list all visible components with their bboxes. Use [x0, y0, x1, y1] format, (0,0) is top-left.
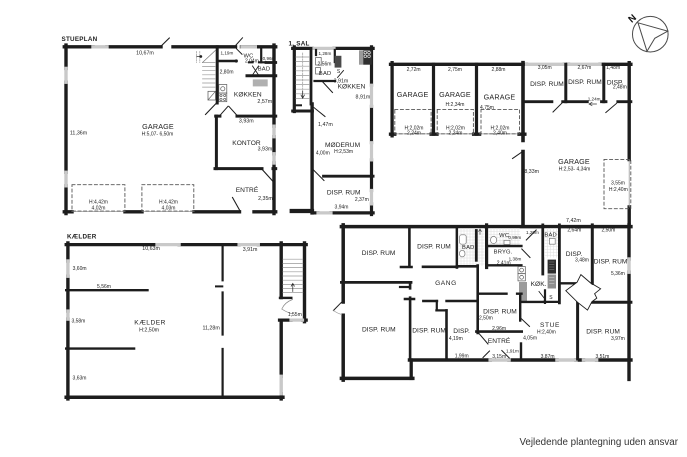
svg-text:8,91m: 8,91m	[356, 94, 371, 100]
svg-text:3,91m: 3,91m	[243, 247, 258, 253]
svg-text:H:2,40m: H:2,40m	[537, 329, 556, 335]
svg-text:KØKKEN: KØKKEN	[338, 84, 366, 91]
svg-text:1,48m: 1,48m	[606, 65, 620, 71]
svg-text:11,36m: 11,36m	[70, 130, 88, 136]
svg-text:DISP. RUM: DISP. RUM	[362, 250, 396, 257]
svg-text:3,05m: 3,05m	[538, 65, 552, 71]
svg-text:3,48m: 3,48m	[575, 258, 589, 264]
svg-text:3,60m: 3,60m	[73, 266, 87, 272]
svg-text:3,15m: 3,15m	[492, 354, 506, 360]
svg-text:KÆLDER: KÆLDER	[134, 320, 166, 327]
svg-text:1,91m: 1,91m	[506, 348, 519, 353]
svg-text:GANG: GANG	[435, 280, 457, 287]
svg-text:GARAGE: GARAGE	[558, 157, 590, 166]
svg-text:2,35m: 2,35m	[258, 196, 273, 202]
svg-text:3,63m: 3,63m	[73, 376, 87, 382]
svg-text:1,99m: 1,99m	[455, 354, 469, 360]
svg-text:2,41m: 2,41m	[497, 261, 511, 267]
svg-text:2,88m: 2,88m	[492, 67, 506, 73]
svg-text:3,87m: 3,87m	[541, 354, 555, 360]
svg-text:BAD: BAD	[258, 67, 271, 73]
svg-text:STUEPLAN: STUEPLAN	[62, 36, 98, 43]
svg-text:1,24m: 1,24m	[588, 97, 601, 102]
svg-text:2,37m: 2,37m	[355, 197, 369, 203]
svg-text:4,02m: 4,02m	[92, 205, 106, 211]
svg-text:H:2,34m: H:2,34m	[446, 102, 465, 108]
svg-text:3,93m: 3,93m	[258, 147, 273, 153]
svg-text:KONTOR: KONTOR	[232, 140, 261, 147]
svg-text:BRYG.: BRYG.	[494, 250, 513, 256]
svg-text:DISP. RUM: DISP. RUM	[530, 81, 564, 88]
svg-text:3,94m: 3,94m	[335, 204, 349, 210]
svg-text:2,64m: 2,64m	[567, 228, 581, 234]
svg-text:10,67m: 10,67m	[136, 50, 154, 56]
svg-text:DISP. RUM: DISP. RUM	[586, 329, 620, 336]
svg-text:2,04m: 2,04m	[245, 59, 259, 65]
svg-text:3,51m: 3,51m	[595, 354, 609, 360]
svg-text:8,33m: 8,33m	[524, 169, 539, 175]
svg-text:MØDERUM: MØDERUM	[325, 142, 360, 149]
svg-text:DISP. RUM: DISP. RUM	[568, 79, 602, 86]
svg-text:KØKKEN: KØKKEN	[234, 92, 262, 99]
svg-text:2,24m: 2,24m	[449, 130, 463, 136]
svg-text:11,28m: 11,28m	[202, 325, 220, 331]
svg-text:KØK.: KØK.	[531, 281, 547, 288]
svg-text:4,05m: 4,05m	[523, 336, 537, 342]
svg-text:2,57m: 2,57m	[257, 99, 272, 105]
svg-text:BAD: BAD	[544, 232, 557, 238]
svg-text:KÆLDER: KÆLDER	[67, 234, 97, 241]
svg-text:5,36m: 5,36m	[611, 271, 625, 277]
svg-text:H:2,50m: H:2,50m	[139, 327, 160, 333]
svg-text:3,97m: 3,97m	[611, 336, 625, 342]
svg-text:1. SAL: 1. SAL	[289, 40, 310, 47]
svg-text:0,99m: 0,99m	[508, 235, 521, 240]
svg-text:2,75m: 2,75m	[448, 67, 462, 73]
svg-text:H:2,40m: H:2,40m	[609, 187, 628, 193]
svg-text:1,55m: 1,55m	[288, 312, 302, 318]
svg-text:GARAGE: GARAGE	[484, 92, 516, 101]
svg-text:GARAGE: GARAGE	[397, 90, 429, 99]
svg-text:DISP. RUM: DISP. RUM	[417, 244, 451, 251]
svg-text:H:5,07- 6,50m: H:5,07- 6,50m	[142, 132, 174, 138]
svg-text:2,50m: 2,50m	[479, 316, 493, 322]
svg-text:ENTRÉ: ENTRÉ	[488, 336, 511, 345]
svg-text:DISP.: DISP.	[453, 328, 470, 335]
svg-text:4,19m: 4,19m	[449, 336, 463, 342]
svg-text:GARAGE: GARAGE	[439, 90, 471, 99]
svg-text:4,00m: 4,00m	[316, 150, 330, 156]
svg-text:1,28m: 1,28m	[319, 51, 332, 56]
svg-text:4,03m: 4,03m	[162, 205, 176, 211]
svg-text:10,63m: 10,63m	[142, 246, 160, 252]
svg-text:2,24m: 2,24m	[407, 130, 421, 136]
svg-text:2,50m: 2,50m	[601, 228, 615, 234]
svg-text:DISP. RUM: DISP. RUM	[362, 327, 396, 334]
svg-text:Vejledende plantegning uden an: Vejledende plantegning uden ansvar	[519, 437, 678, 448]
svg-text:4,75m: 4,75m	[480, 105, 494, 111]
svg-text:H:2,53- 4,34m: H:2,53- 4,34m	[559, 167, 591, 173]
svg-text:2,48m: 2,48m	[613, 85, 627, 91]
svg-text:1,47m: 1,47m	[318, 122, 333, 128]
svg-text:ENTRÉ: ENTRÉ	[236, 185, 259, 194]
svg-text:H:2,53m: H:2,53m	[334, 149, 353, 155]
svg-text:DISP. RUM: DISP. RUM	[327, 190, 361, 197]
svg-text:2,40m: 2,40m	[493, 130, 507, 136]
svg-text:2,67m: 2,67m	[577, 65, 591, 71]
svg-text:3,93m: 3,93m	[239, 118, 254, 124]
svg-text:STUE: STUE	[540, 322, 560, 329]
svg-text:1,19m: 1,19m	[221, 50, 234, 55]
svg-text:3,58m: 3,58m	[71, 319, 85, 325]
svg-text:2,56m: 2,56m	[318, 61, 332, 67]
svg-text:BAD: BAD	[462, 245, 475, 251]
svg-text:DISP. RUM: DISP. RUM	[594, 259, 628, 266]
svg-text:BAD: BAD	[319, 71, 332, 77]
svg-text:7,42m: 7,42m	[566, 218, 581, 224]
svg-text:GARAGE: GARAGE	[142, 122, 174, 131]
svg-text:2,72m: 2,72m	[407, 67, 421, 73]
svg-text:5,56m: 5,56m	[97, 284, 111, 290]
svg-text:DISP. RUM: DISP. RUM	[412, 328, 446, 335]
svg-text:2,96m: 2,96m	[492, 326, 506, 332]
svg-text:0,96m: 0,96m	[263, 56, 276, 61]
svg-text:3,55m: 3,55m	[611, 180, 625, 186]
svg-text:2,80m: 2,80m	[220, 69, 234, 75]
svg-text:1,20m: 1,20m	[526, 230, 539, 235]
